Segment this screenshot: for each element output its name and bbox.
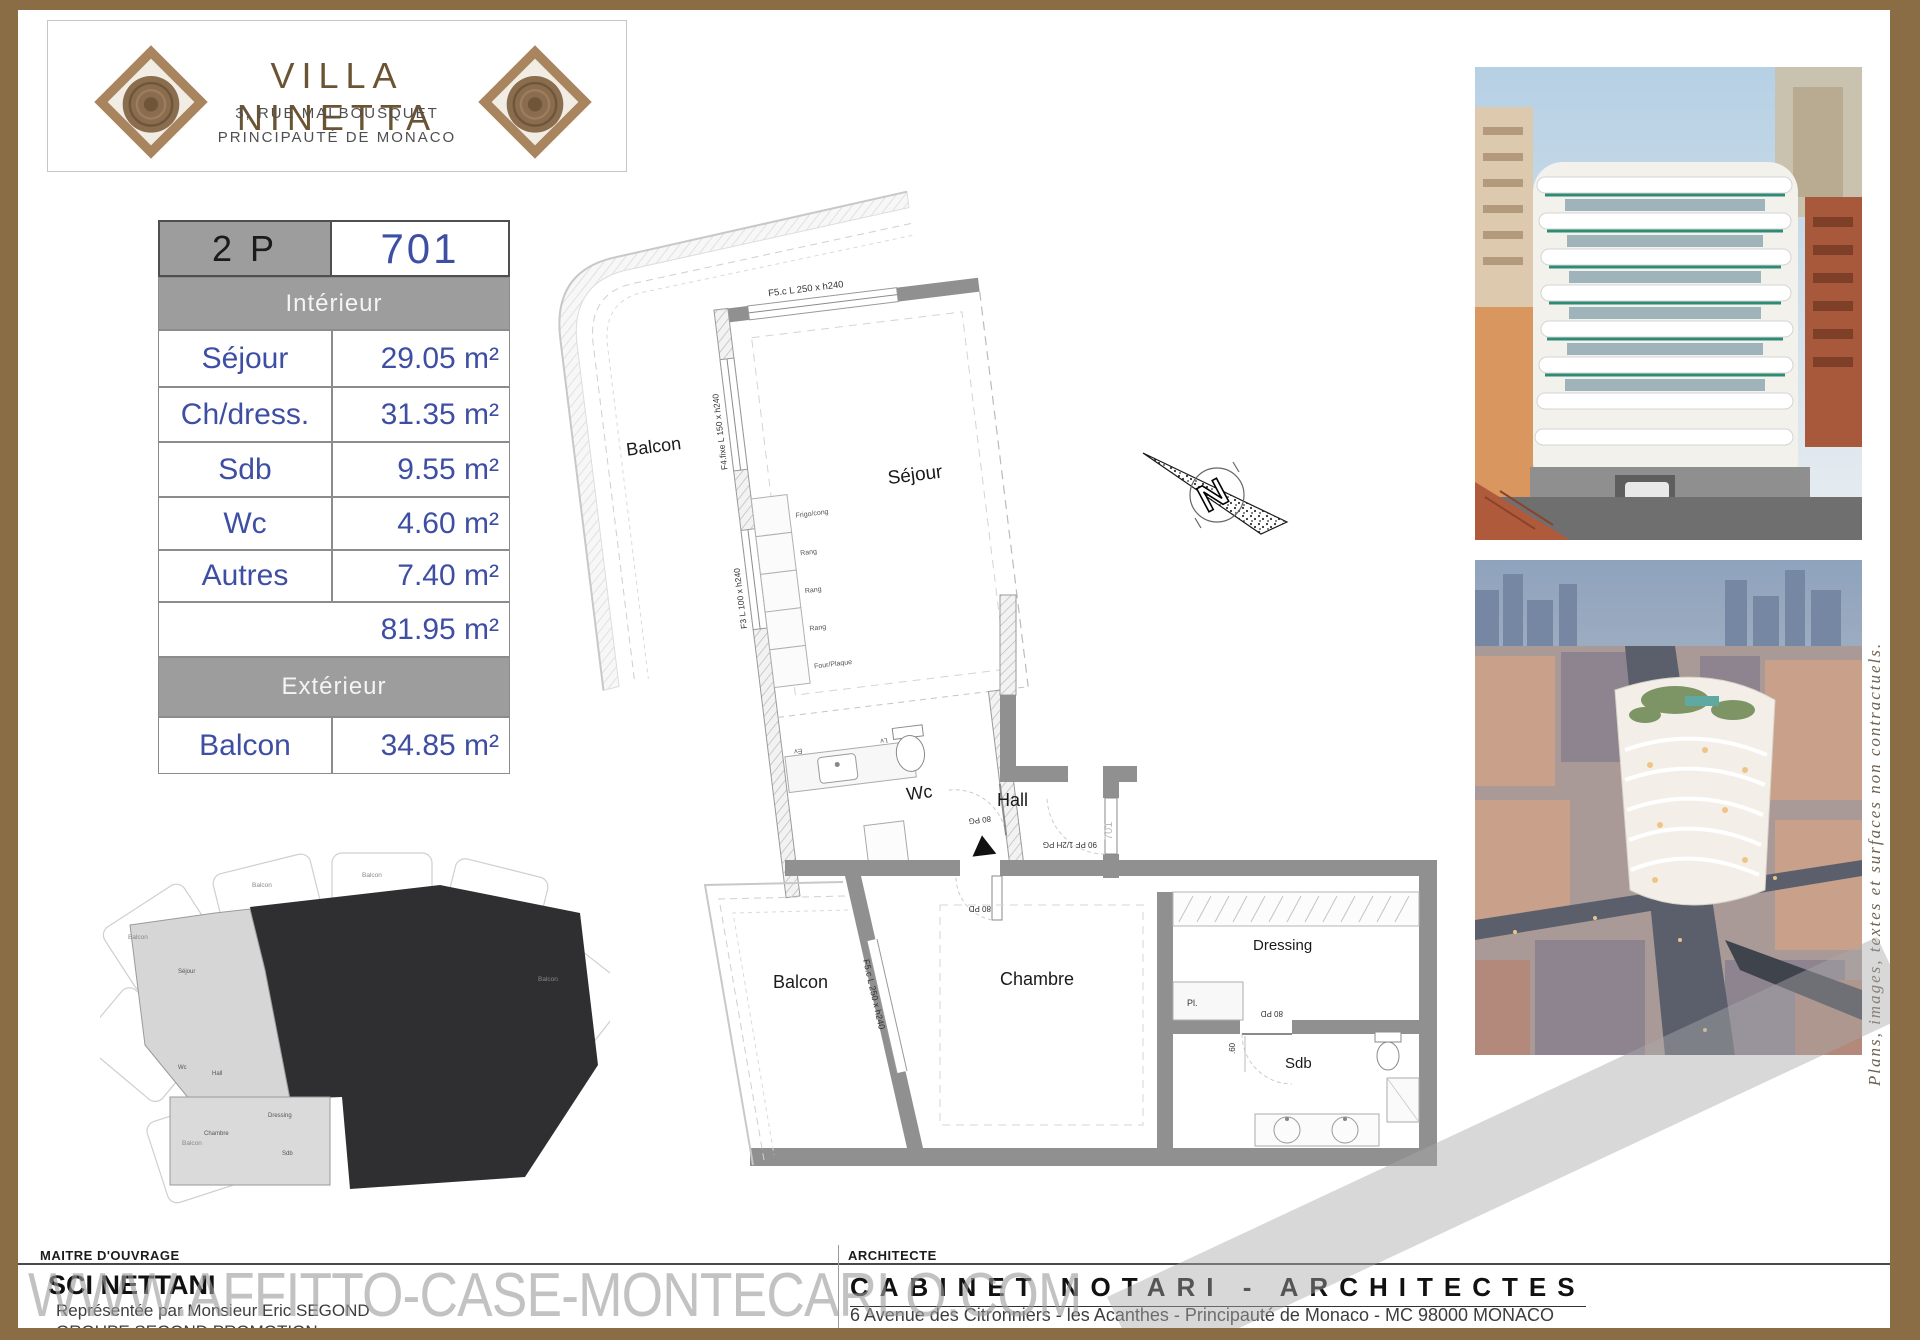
- frame-bottom: [0, 1328, 1920, 1340]
- wall: [1000, 766, 1068, 782]
- entry-unit-number: 701: [1103, 822, 1115, 840]
- door-label-wc: 80 PG: [968, 814, 992, 826]
- row-label: Autres: [158, 550, 332, 602]
- row-label: Wc: [158, 497, 332, 550]
- frame-top: [0, 0, 1920, 10]
- mini-label-sdb: Sdb: [282, 1151, 293, 1157]
- row-value: 4.60 m²: [332, 497, 510, 550]
- wall: [785, 860, 960, 876]
- mini-label-balcon: Balcon: [252, 882, 272, 889]
- mini-label-hall: Hall: [212, 1071, 222, 1077]
- row-label: Sdb: [158, 442, 332, 497]
- room-label-dressing: Dressing: [1253, 937, 1312, 954]
- mini-label-dressing: Dressing: [268, 1113, 292, 1119]
- villa-aerial: [1615, 677, 1775, 905]
- mini-label-wc: Wc: [178, 1065, 187, 1071]
- closet-pl: [1173, 982, 1243, 1020]
- row-value: 31.35 m²: [332, 387, 510, 442]
- mini-label-chambre: Chambre: [204, 1131, 229, 1137]
- wall: [1103, 782, 1119, 798]
- row-value: 34.85 m²: [332, 717, 510, 774]
- watermark-text: WWW.AFFITTO-CASE-MONTECARLO.COM: [28, 1260, 1082, 1331]
- sink: [817, 753, 858, 783]
- kitchen-label-oven: Four/Plaque: [814, 659, 853, 671]
- room-label-chambre: Chambre: [1000, 969, 1074, 989]
- door-label-entry: 90 PF 1/2H PG: [1043, 840, 1097, 849]
- kitchen-label-lv: Lv: [879, 736, 888, 744]
- room-label-hall: Hall: [997, 790, 1028, 810]
- wall: [1000, 595, 1016, 695]
- mini-label-balcon: Balcon: [182, 1140, 202, 1147]
- closet-label: Pl.: [1187, 998, 1198, 1008]
- frame-left: [0, 0, 18, 1340]
- area-table: 2 P 701 Intérieur Séjour 29.05 m² Ch/dre…: [158, 220, 510, 774]
- interior-total: 81.95 m²: [158, 602, 510, 657]
- row-value: 29.05 m²: [332, 330, 510, 387]
- wall: [1103, 854, 1119, 878]
- exterior-header: Extérieur: [158, 657, 510, 717]
- row-label: Ch/dress.: [158, 387, 332, 442]
- wall: [1173, 1020, 1240, 1034]
- balcony-bottom-outline: [705, 882, 848, 1165]
- row-label: Balcon: [158, 717, 332, 774]
- north-arrow: N: [1143, 453, 1287, 534]
- wall: [1000, 860, 1103, 876]
- mini-label-sejour: Séjour: [178, 969, 195, 975]
- wall: [1119, 860, 1437, 876]
- kitchen-label-fridge: Frigo/cong: [795, 509, 829, 520]
- floor-plan: Balcon F5.c L 250 x h240 F4.fixe L 150 x…: [545, 170, 1445, 1180]
- row-label: Séjour: [158, 330, 332, 387]
- legal-note: Plans, images, textes et surfaces non co…: [1865, 579, 1889, 1149]
- chambre-ceiling-dash: [940, 905, 1143, 1125]
- wall: [1419, 876, 1437, 1166]
- photo-aerial-render: [1475, 560, 1862, 1055]
- room-label-balcon-top: Balcon: [625, 433, 682, 460]
- mini-label-balcon: Balcon: [538, 976, 558, 983]
- villa-logo-icon: [476, 43, 594, 161]
- kitchen-label-rang1: Rang: [800, 548, 818, 557]
- kitchen-label-ev: Ev: [793, 747, 802, 755]
- key-plan: Séjour Wc Hall Chambre Dressing Sdb Balc…: [100, 845, 610, 1205]
- sdb-toilet: [1375, 1032, 1401, 1070]
- logo-box: VILLA NINETTA 3, RUE MALBOUSQUET PRINCIP…: [47, 20, 627, 172]
- project-title: VILLA NINETTA: [168, 55, 506, 139]
- room-label-wc: Wc: [905, 781, 933, 804]
- door-label-sdb: 80 PD: [1261, 1009, 1283, 1018]
- lot-number: 701: [332, 220, 510, 277]
- triangle-marker: [970, 834, 996, 857]
- double-sink: [1255, 1114, 1379, 1146]
- unit-type: 2 P: [158, 220, 332, 277]
- frame-right: [1890, 0, 1920, 1340]
- row-value: 9.55 m²: [332, 442, 510, 497]
- room-label-sdb: Sdb: [1285, 1055, 1312, 1072]
- room-label-sejour: Séjour: [887, 461, 945, 489]
- kitchen-label-rang2: Rang: [805, 586, 823, 595]
- project-address-line1: 3, RUE MALBOUSQUET: [168, 105, 506, 122]
- project-address-line2: PRINCIPAUTÉ DE MONACO: [168, 129, 506, 146]
- dim-label: .60: [1228, 1042, 1237, 1054]
- photo-building-render: [1475, 67, 1862, 540]
- interior-header: Intérieur: [158, 277, 510, 330]
- shower: [1387, 1078, 1419, 1122]
- wall: [750, 1148, 1437, 1166]
- room-label-balcon-bottom: Balcon: [773, 972, 828, 992]
- mini-label-balcon: Balcon: [362, 872, 382, 879]
- wardrobe: [1173, 892, 1419, 926]
- mini-label-balcon: Balcon: [128, 934, 148, 941]
- wall: [1157, 892, 1173, 1148]
- curved-building: [1533, 162, 1798, 492]
- brochure-page: VILLA NINETTA 3, RUE MALBOUSQUET PRINCIP…: [0, 0, 1920, 1340]
- kitchen-label-rang3: Rang: [809, 624, 827, 633]
- row-value: 7.40 m²: [332, 550, 510, 602]
- washer-box: [864, 821, 909, 866]
- wall: [1103, 766, 1137, 782]
